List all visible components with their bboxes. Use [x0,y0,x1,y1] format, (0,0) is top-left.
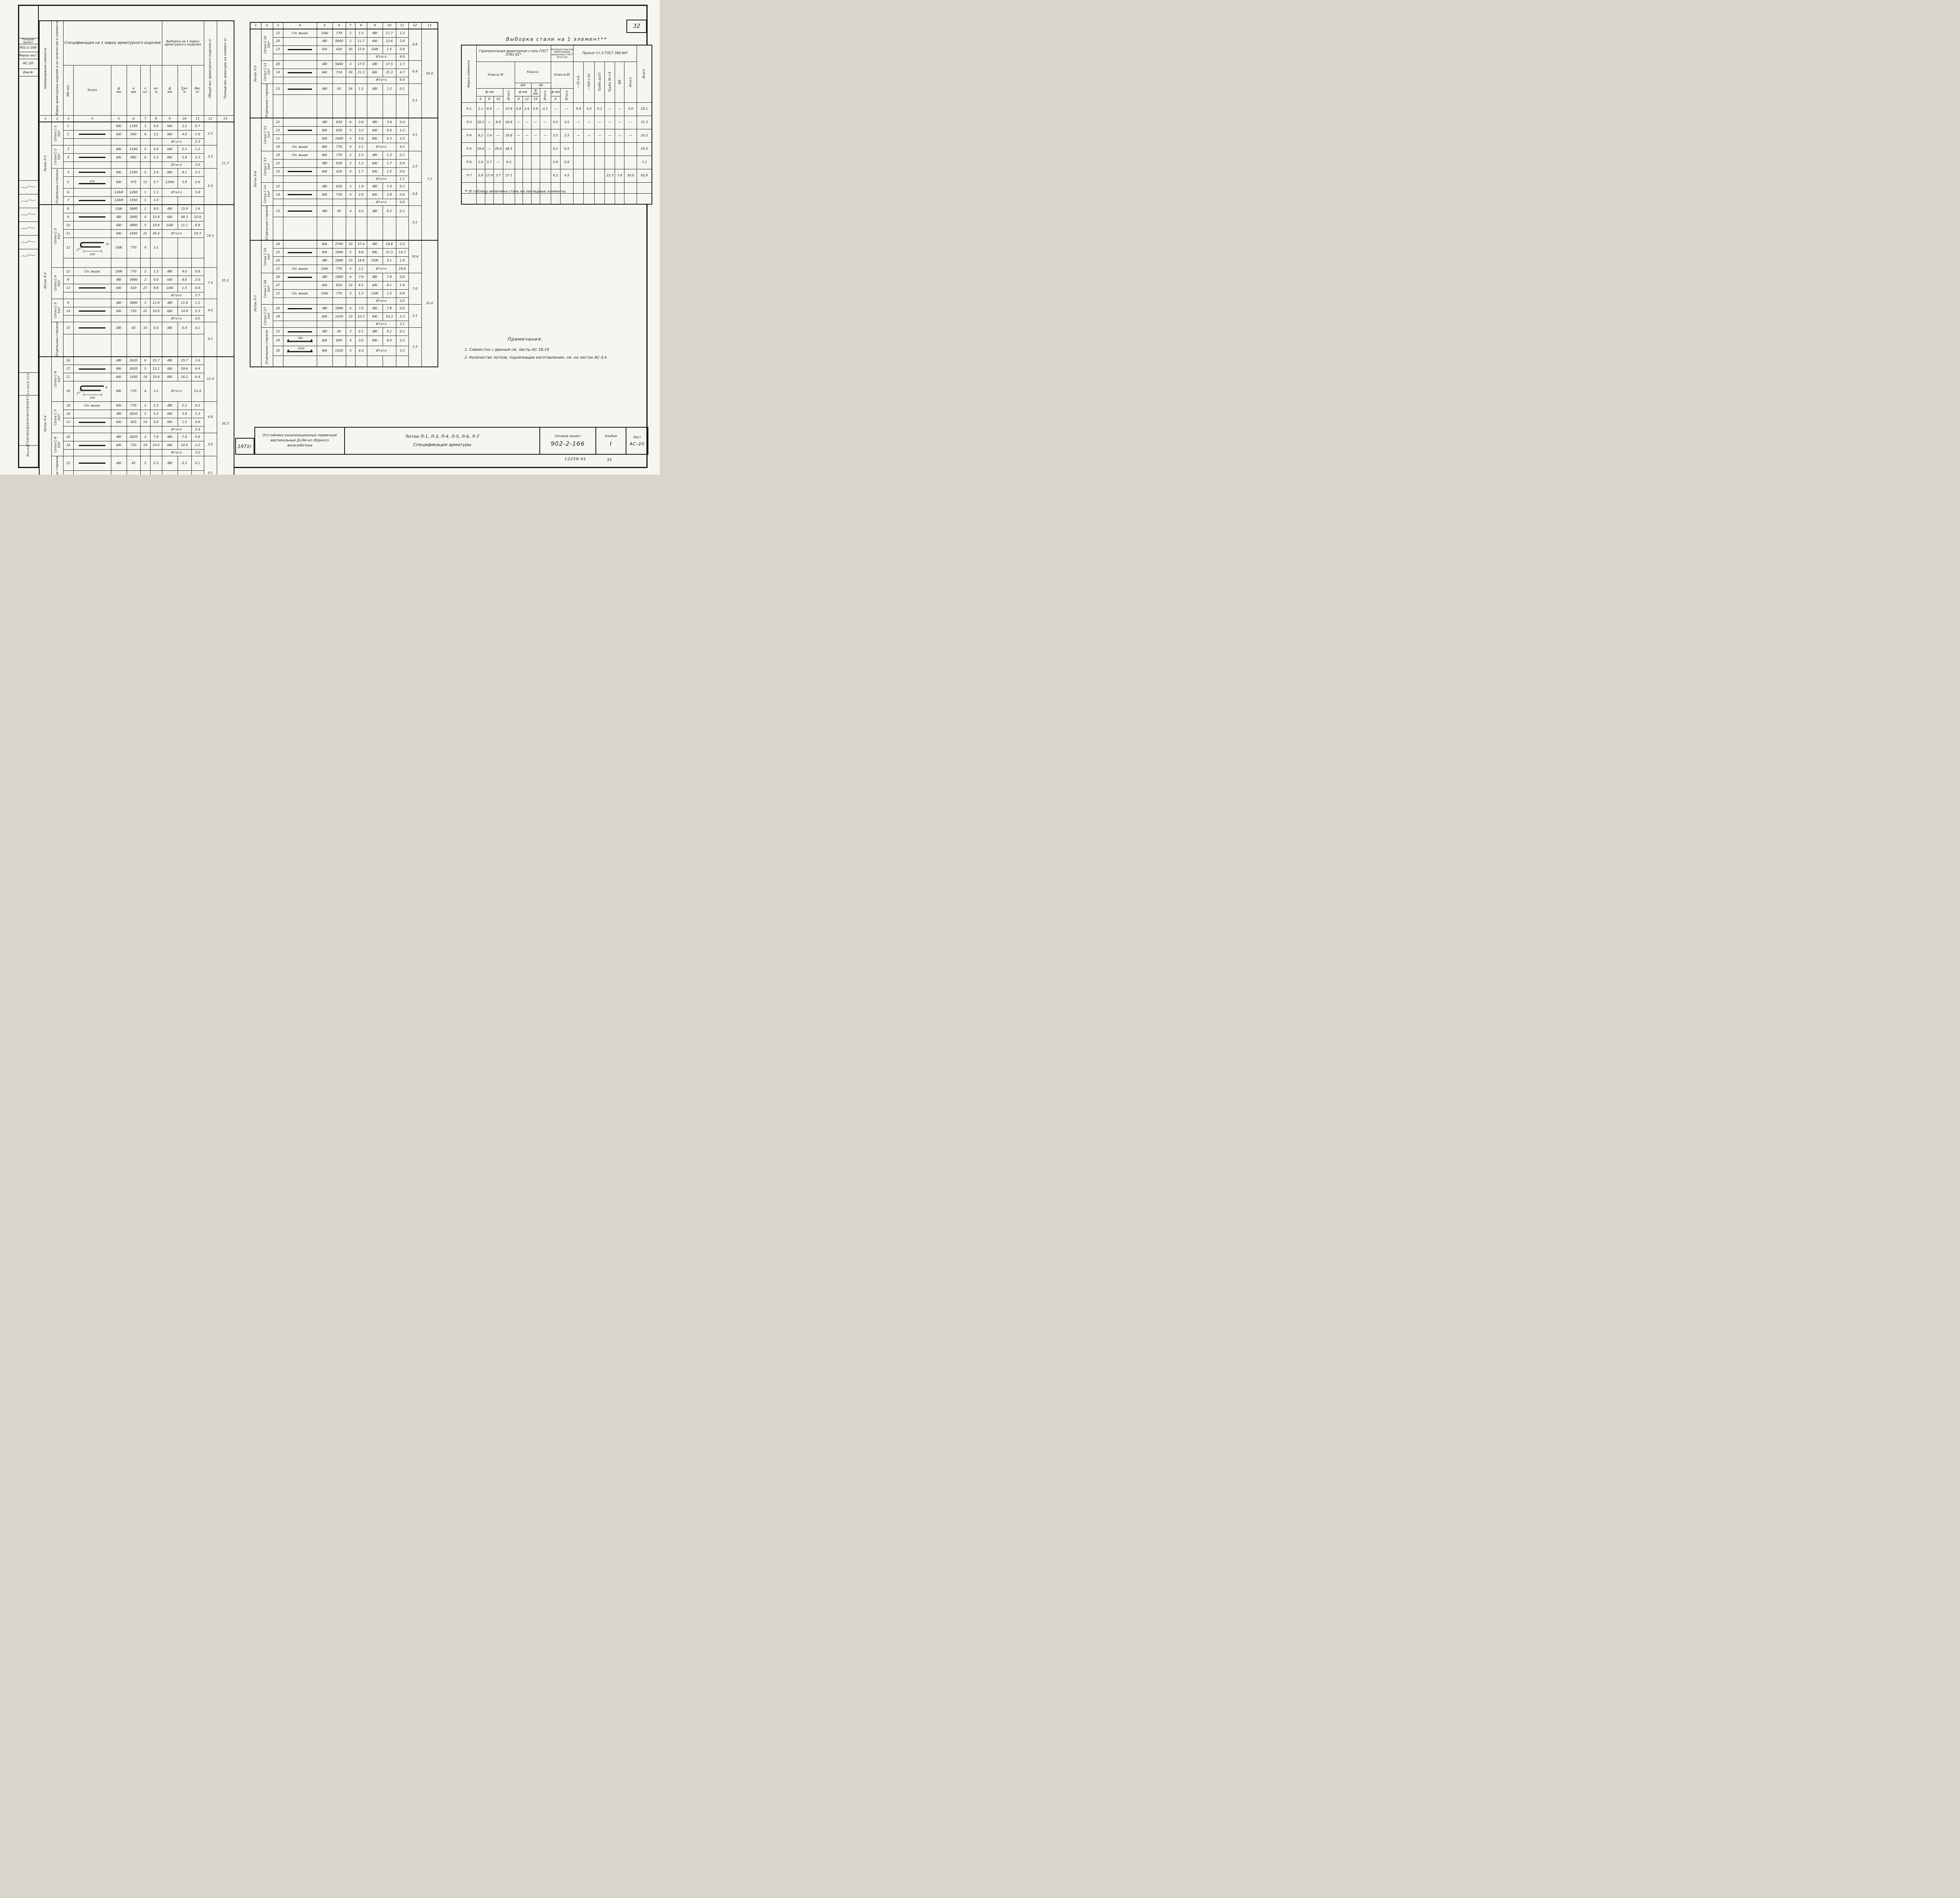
vyborka-weight-kg: 1.9 [396,257,408,265]
pos-number: 5 [63,176,73,188]
empty-cell [346,199,355,205]
sketch-empty [73,122,111,130]
length-mm: 1400 [127,229,140,238]
empty-cell [332,321,346,328]
bar-class: 10АI [317,265,332,273]
bar-class: 6АI [317,69,332,77]
bar-class: 6АI [111,221,127,229]
vyborka-length-m: 3.1 [383,257,396,265]
length-mm: 2620 [127,365,140,373]
vyborka-weight-kg: 3.2 [396,336,408,346]
steel-value: 4.0 [584,102,595,116]
steel-value [615,142,624,156]
svg-text:2×35: 2×35 [76,245,84,252]
qty-pcs: 1 [140,196,150,205]
rebar-hook-sketch: 2×3533070 [74,238,111,258]
item-weight: 9.8 [408,29,421,60]
signature-scribble [18,249,38,263]
vyborka-weight-kg: 6.4 [191,373,204,381]
length-total-m: 1.9 [355,182,367,191]
item-weight: 0.8 [408,182,421,205]
empty-cell [111,258,127,267]
mesh-mark: Сетка С-12 1шт [261,118,273,151]
length-mm: 1290 [127,188,140,196]
vyborka-length-m: 11.9 [178,299,191,307]
sketch-see: См. выше [73,402,111,410]
qty-pcs: 21 [140,284,150,292]
col-number: 8 [150,116,162,122]
steel-value [573,156,584,169]
length-mm: 770 [332,143,346,151]
bar-class: 4ВI [111,357,127,365]
itogo-label: Итого [367,321,396,328]
empty-cell [140,426,150,433]
length-total-m: 1.6 [150,196,162,205]
signature-scribble [18,221,38,235]
empty-cell [485,193,494,204]
sketch-empty [283,257,317,265]
empty-cell [127,470,140,475]
steel-value: 30.9 [624,169,637,182]
col-unit: мм [127,91,140,94]
pos-number: 20 [273,60,283,69]
sheet-title: Лотки Л-1, Л-3, Л-4, Л-5, Л-6, Л-7 Специ… [345,428,540,454]
length-total-m: 7.9 [150,433,162,441]
col-unit: м [178,91,191,94]
steel-value: — [605,129,615,142]
col-unit: м [151,91,162,94]
pos-number: 1 [63,122,73,130]
dim-label: 415 [74,180,111,183]
spec-table-middle: 12345678910111213Лоток Л-5Сетка С-10 2шт… [250,22,438,367]
sketch-bar [283,205,317,217]
steel-value: 3.5 [560,129,573,142]
itogo-col: Итого [560,88,573,102]
empty-cell [111,292,127,299]
rebar-line [79,327,105,328]
empty-cell [355,199,367,205]
qty-pcs: 3 [140,122,150,130]
sketch-bar [73,168,111,176]
element-label: Лоток Л-3 [44,272,47,289]
col-6-header: емм [127,65,140,115]
bar-class: 4ВI [317,159,332,167]
qty-pcs: 6 [346,118,355,126]
pos-number: 11 [63,373,73,381]
empty-cell [127,450,140,456]
mesh-mark: Сетка С-6 1шт [51,357,63,402]
sketch-empty [73,145,111,153]
vyborka-class: 4ВI [162,205,178,213]
rebar-line [288,252,312,253]
mesh-mark-label: Сетка С-4 2шт [54,275,61,291]
item-weight: 5.9 [204,168,217,205]
mesh-mark: Сетка С-10 2шт [261,29,273,60]
total-label: Всего [642,69,646,78]
col-pos-header: NN поз. [63,65,73,115]
see-above-text: См. выше [283,145,317,149]
spec-table-left: Наименование элементаМарки арматурных из… [39,20,234,475]
fmm-header: ф мм [515,88,531,96]
mesh-mark: Сетка С-1 1шт [51,122,63,145]
vyborka-length-m: 19.6 [178,365,191,373]
fmm-header: ф мм [476,88,503,96]
steel-value: 7.6 [615,169,624,182]
mesh-mark: Отдельные стержни [261,205,273,240]
diameter-tick: 8 [515,96,523,102]
bar-class: 10АI [317,290,332,298]
specification-table-2: 12345678910111213Лоток Л-5Сетка С-10 2шт… [250,22,438,367]
element-label: Лоток Л-1 [44,155,47,172]
element-mark: Л-7 [461,169,476,182]
vyborka-weight-kg: 2.6 [191,176,204,188]
svg-text:1000: 1000 [298,347,305,350]
vyborka-weight-kg: 1.6 [191,130,204,138]
vyborka-class: 10АI [367,290,383,298]
itogo-label: Итого [367,265,396,273]
sketch-bar [73,307,111,315]
length-total-m: 3.1 [355,143,367,151]
qty-pcs: 4 [346,346,355,356]
pos-number: 30 [273,346,283,356]
col-number: 1 [39,116,51,122]
length-total-m: 3.1 [150,381,162,402]
steel-value: 0.8 [573,102,584,116]
empty-cell [127,292,140,299]
empty-cell [73,161,111,168]
itogo-label: Итого [162,138,191,145]
vyborka-weight-kg: 0.9 [191,284,204,292]
mesh-mark-label: Отдельные стержни [56,322,59,356]
empty-cell [317,199,332,205]
empty-cell [140,315,150,322]
qty-pcs: 2 [346,290,355,298]
itogo-col-label: Итого [544,91,547,100]
item-weight: 4.8 [204,402,217,433]
corner-mark-value: АС-20 [18,59,38,69]
empty-cell [162,196,178,205]
sketch-empty [73,221,111,229]
sketch-bar [283,273,317,281]
corner-marka-list: Марка-лист [18,52,38,59]
vyborka-length-m: 8.0 [383,336,396,346]
empty-cell [150,334,162,357]
vyborka-weight-kg: 3.3 [191,307,204,315]
empty-cell [63,450,73,456]
element-name: Лоток Л-4 [39,357,51,475]
sketch-hook: 2×35330R [73,381,111,402]
qty-pcs: 1 [140,188,150,196]
empty-cell [283,356,317,367]
length-mm: 1550 [127,196,140,205]
vyborka-weight-kg: 0.8 [191,433,204,441]
bar-class: 6АI [111,229,127,238]
vyborka-length-m: 5.6 [383,126,396,134]
pos-number: 15 [273,205,283,217]
length-mm: 1980 [332,257,346,265]
col-total: Всего [637,45,652,102]
bar-class: 4ВI [317,83,332,95]
steel-value: 26.8 [503,116,515,129]
bar-class: 4ВI [111,410,127,418]
steel-value [595,156,605,169]
pos-number: 17 [63,365,73,373]
itogo-value: 3.5 [396,298,408,305]
itogo-label: Итого [162,292,191,299]
sheet-number: АС-20 [630,441,644,446]
empty-cell [317,54,332,60]
document-number: 12256-01 [564,457,586,461]
sketch-hook: 2×3533070 [73,238,111,258]
pos-number: 29 [273,336,283,346]
vyborka-weight-kg: 0.6 [191,418,204,426]
vyborka-weight-kg: 0.6 [396,191,408,199]
col-number: 7 [346,22,355,29]
qty-pcs: 4 [346,191,355,199]
steel-value: — [605,102,615,116]
steel-value [523,156,531,169]
empty-cell [140,161,150,168]
itogo-col-label: Итого [507,91,510,100]
pos-number: 11 [63,229,73,238]
vyborka-class: 4ВI [367,83,383,95]
rebar-line [288,210,312,212]
vyborka-class: 8АI [367,167,383,176]
pos-number: 12 [273,29,283,37]
mesh-mark-label: Сетка С-17 1шт [264,307,270,325]
length-total-m: 5.9 [150,145,162,153]
mesh-mark: Отдельные стержни [51,168,63,205]
vyborka-weight-kg: 10.9 [191,213,204,221]
length-total-m: 11.9 [150,299,162,307]
class-b1-header: Класса ВI [551,62,573,88]
empty-cell [560,193,573,204]
length-total-m: 1.5 [355,151,367,159]
mesh-mark-label: Сетка С-14 1шт [264,185,270,203]
col-8-header: еnм [150,65,162,115]
vyborka-class: 4ВI [367,305,383,313]
length-total-m: 3.2 [355,126,367,134]
item-weight: 2.3 [204,122,217,145]
steel-value [523,142,531,156]
vyborka-length-m: 3.8 [383,118,396,126]
empty-cell [503,193,515,204]
mesh-mark-label: Сетка С-3 1шт [54,228,61,244]
pos-number: 26 [273,257,283,265]
itogo-label: Итого [162,229,191,238]
element-label: Лоток Л-5 [254,65,257,82]
mesh-mark: Сетка С-17 1шт [261,305,273,328]
drawing-sheet: Типовой проект 902-2-166 Марка-лист АС-2… [0,0,660,475]
vyborka-class: 12АIII [162,176,178,188]
empty-cell [332,54,346,60]
length-total-m: 19.9 [150,221,162,229]
length-total-m: 0.4 [150,322,162,334]
pos-number: 26 [273,305,283,313]
see-above-text: См. выше [74,404,111,407]
empty-cell [127,315,140,322]
cold-drawn-header: Холоднотянутая арматурная проволока ГОСТ… [551,45,573,62]
pos-number: 16 [63,357,73,365]
steel-value: 18.2 [476,116,485,129]
empty-cell [383,95,396,118]
pos-number: 15 [273,328,283,336]
diameter-tick: 10 [494,96,503,102]
sketch-bar [73,153,111,161]
rolled-col-label: ф6 [618,80,621,84]
length-total-m: 5.2 [150,410,162,418]
length-total-m: 0.2 [355,205,367,217]
sketch-see: См. выше [283,265,317,273]
qty-pcs: 2 [140,267,150,276]
empty-cell [191,258,204,267]
sketch-bar [283,328,317,336]
col-total-weight-label: Полный вес арматуры на элемент кг [224,38,227,99]
pos-number: 14 [273,69,283,77]
steel-value [531,156,540,169]
steel-value: — [531,129,540,142]
empty-cell [111,334,127,357]
item-weight: 3.3 [408,328,421,367]
mesh-mark: Сетка С-13 2шт [261,151,273,182]
steel-summary-table: Марка элементаГорячекатаная арматурная с… [461,45,652,205]
steel-value: — [595,129,605,142]
org-label: Госстрой СССР [18,372,38,395]
itogo-label: Итого [367,176,396,182]
vyborka-class: 6АI [367,313,383,321]
length-mm: 890 [127,153,140,161]
vyborka-length-m: 1.2 [383,83,396,95]
sketch-bar [283,191,317,199]
vyborka-weight-kg: 0.2 [396,182,408,191]
bar-class: 4ВI [111,213,127,221]
sketch-bar [73,365,111,373]
rebar-line [288,49,312,50]
bar-class: 6АI [111,130,127,138]
empty-cell [367,217,383,240]
fmm-header: ф мм [551,88,560,96]
sketch-bar [73,284,111,292]
rolled-col-header: —100×10 [584,62,595,102]
class-header: Класса [515,62,551,83]
steel-value: 2.6 [523,102,531,116]
length-total-m: 2.4 [150,168,162,176]
length-mm: 420 [127,418,140,426]
steel-value [515,169,523,182]
sketch-bar [73,456,111,470]
element-total-weight: 55.0 [421,29,438,118]
length-total-m: 1.2 [355,83,367,95]
steel-value [615,156,624,169]
mesh-mark: Отдельные стержни [261,328,273,367]
row-total: 62.9 [637,169,652,182]
col-number: 13 [217,116,234,122]
steel-value: — [615,102,624,116]
rebar-line [288,194,312,195]
itogo-value: 6.4 [396,77,408,83]
length-total-m: 19.8 [355,257,367,265]
note-item: 1. Совместно с данным см. листы АС-18,19 [465,347,637,353]
col-number: 10 [178,116,191,122]
empty-cell [63,426,73,433]
item-weight: 6.4 [408,60,421,83]
sketch-empty [283,37,317,45]
vyborka-class: 4ВI [367,240,383,249]
steel-value: 0.9 [560,156,573,169]
qty-pcs: 14 [140,418,150,426]
sketch-empty [73,373,111,381]
vyborka-length-m: 21.3 [383,69,396,77]
itogo-value: 0.8 [396,199,408,205]
steel-value: 3.7 [494,169,503,182]
vyborka-length-m: 0.2 [383,328,396,336]
svg-text:780: 780 [298,337,303,340]
see-above-text: См. выше [283,267,317,270]
vyborka-weight-kg: 2.0 [191,276,204,284]
itogo-label: Итого [367,199,396,205]
bar-class: 12АIII [111,188,127,196]
org-label-text: Госстрой СССР [27,372,30,395]
row-total: 20.3 [637,129,652,142]
sketch-see: См. выше [283,29,317,37]
empty-cell [63,161,73,168]
project-description: Отстойники канализационные первичные вер… [255,428,345,454]
itogo-label: Итого [162,381,191,402]
sketch-see: См. выше [283,290,317,298]
item-weight: 18.6 [408,240,421,273]
bar-class: 8АI [111,122,127,130]
steel-value: 0.8 [515,102,523,116]
empty-cell [317,176,332,182]
sketch-empty [283,313,317,321]
sketch-bar [283,83,317,95]
bar-class: 6АI [317,281,332,290]
empty-cell [191,196,204,205]
steel-value [523,169,531,182]
itogo-value: 1.1 [396,176,408,182]
empty-cell [73,258,111,267]
pos-number: 13 [273,45,283,54]
qty-pcs: 14 [140,373,150,381]
steel-value: 48.5 [503,142,515,156]
sketch-see: См. выше [283,151,317,159]
bar-class: 4ВI [317,60,332,69]
pos-number: 14 [273,191,283,199]
see-above-text: См. выше [283,292,317,295]
length-mm: 770 [127,381,140,402]
empty-cell [63,334,73,357]
bar-class: 8АI [111,402,127,410]
diameter-tick: 8 [485,96,494,102]
vyborka-weight-kg: 2.3 [396,313,408,321]
steel-value [584,142,595,156]
mesh-mark-label: Сетка С-7 2шт [54,409,61,425]
item-weight: 7.0 [408,273,421,305]
svg-text:330: 330 [90,396,95,399]
empty-cell [63,315,73,322]
length-mm: 3980 [127,276,140,284]
sketch-empty [73,188,111,196]
col-number: 8 [355,22,367,29]
bar-class: 4ВI [317,305,332,313]
vyborka-class: 6АI [162,276,178,284]
itogo-value: 4.9 [396,54,408,60]
vyborka-length-m: 1.7 [383,159,396,167]
mesh-mark: Сетка С-5 1шт [51,299,63,322]
mesh-mark: Сетка С-11 1шт [261,60,273,83]
element-mark: Л-3 [461,116,476,129]
steel-value [540,142,551,156]
